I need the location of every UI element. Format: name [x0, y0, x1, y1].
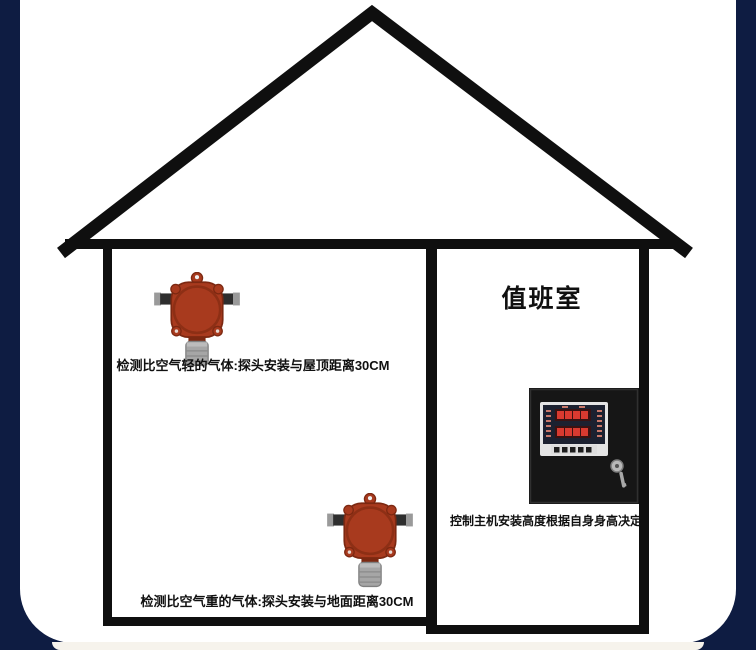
led-digit: [573, 411, 580, 419]
gas-detector-light-icon: [154, 272, 240, 368]
led-digit: [573, 428, 580, 436]
eave-line: [65, 239, 673, 249]
led-digit: [581, 411, 588, 419]
caption-light-gas: 检测比空气轻的气体:探头安装与屋顶距离30CM: [100, 358, 406, 374]
control-panel-icon: [529, 388, 639, 504]
right-wall: [639, 246, 649, 634]
caption-heavy-gas: 检测比空气重的气体:探头安装与地面距离30CM: [124, 594, 430, 610]
left-room-floor: [103, 617, 437, 626]
led-digit: [557, 428, 564, 436]
duty-room-label: 值班室: [470, 279, 614, 315]
left-wall: [103, 246, 112, 626]
caption-controller: 控制主机安装高度根据自身身高决定: [444, 514, 648, 529]
led-digit: [565, 411, 572, 419]
led-digit: [581, 428, 588, 436]
led-digit: [565, 428, 572, 436]
page-background: 值班室: [0, 0, 756, 650]
right-room-floor: [426, 625, 649, 634]
roof-lines: [61, 13, 689, 253]
gas-detector-heavy-icon: [327, 493, 413, 589]
led-digit: [557, 411, 564, 419]
divider-wall: [426, 246, 437, 634]
